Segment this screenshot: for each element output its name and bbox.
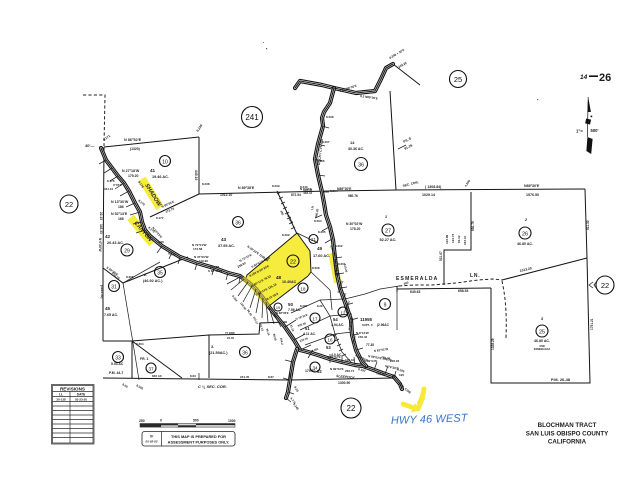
svg-text:N 30°02'W: N 30°02'W <box>346 222 363 226</box>
svg-text:P.M. 26-48: P.M. 26-48 <box>551 377 571 382</box>
svg-text:SAN LUIS OBISPO COUNTY: SAN LUIS OBISPO COUNTY <box>526 431 609 438</box>
svg-text:16: 16 <box>327 338 333 343</box>
svg-text:52.27 AC.: 52.27 AC. <box>380 238 397 242</box>
svg-text:(46.92 AC.): (46.92 AC.) <box>143 279 163 283</box>
svg-text:LN: LN <box>310 206 315 211</box>
svg-text:ESMERALDA: ESMERALDA <box>534 347 551 351</box>
svg-text:FR. 1: FR. 1 <box>140 357 148 361</box>
svg-text:37.95 AC.: 37.95 AC. <box>218 244 235 248</box>
svg-text:2.: 2. <box>143 273 147 277</box>
svg-text:35: 35 <box>157 271 163 277</box>
svg-text:31: 31 <box>111 285 117 291</box>
svg-text:S 82°45'W: S 82°45'W <box>208 269 222 273</box>
svg-text:8.298: 8.298 <box>312 266 320 270</box>
svg-text:48: 48 <box>276 275 282 280</box>
svg-text:03-23-20: 03-23-20 <box>75 398 87 402</box>
svg-text:872.54: 872.54 <box>291 193 301 197</box>
svg-text:20.43 AC.: 20.43 AC. <box>107 241 124 245</box>
svg-text:3°37'8: 3°37'8 <box>113 183 122 187</box>
svg-text:33: 33 <box>115 356 121 362</box>
svg-text:500: 500 <box>193 419 199 423</box>
svg-text:SUP'L C: SUP'L C <box>362 323 373 327</box>
svg-text:25: 25 <box>539 330 545 336</box>
svg-text:1576.50: 1576.50 <box>526 193 539 197</box>
svg-text:8.206: 8.206 <box>317 159 325 163</box>
svg-text:ESMERALDA: ESMERALDA <box>396 276 438 282</box>
svg-text:30.36 AC.: 30.36 AC. <box>348 147 364 151</box>
svg-text:22.13: 22.13 <box>99 212 103 220</box>
svg-text:650.76: 650.76 <box>471 221 475 231</box>
svg-text:46.80 AC.: 46.80 AC. <box>534 339 550 343</box>
svg-text:1029.14: 1029.14 <box>422 193 435 197</box>
svg-text:CALIFORNIA: CALIFORNIA <box>548 439 587 446</box>
svg-text:24.40: 24.40 <box>227 336 234 340</box>
svg-text:43: 43 <box>221 237 227 242</box>
svg-text:7.65 AC.: 7.65 AC. <box>104 313 118 317</box>
svg-text:26: 26 <box>599 72 611 84</box>
svg-text:54: 54 <box>333 317 338 322</box>
svg-text:29: 29 <box>124 249 130 255</box>
svg-text:8.299: 8.299 <box>282 233 290 237</box>
svg-text:8.29: 8.29 <box>317 304 323 308</box>
svg-text:8.304: 8.304 <box>136 342 144 346</box>
svg-text:DATE: DATE <box>77 393 85 397</box>
svg-text:250: 250 <box>139 419 145 423</box>
svg-text:S 89°04'E: S 89°04'E <box>364 359 377 363</box>
svg-text:11955: 11955 <box>360 317 373 322</box>
svg-text:8.63: 8.63 <box>190 374 196 378</box>
svg-text:4.11 AC.: 4.11 AC. <box>303 332 316 336</box>
svg-text:62.02: 62.02 <box>457 235 461 243</box>
svg-text:N 89°02'E: N 89°02'E <box>327 355 341 359</box>
svg-text:1328.29: 1328.29 <box>491 338 495 350</box>
svg-text:14: 14 <box>580 74 588 81</box>
svg-text:BLOCHMAN TRACT: BLOCHMAN TRACT <box>538 422 597 429</box>
svg-text:N 0°20'W: N 0°20'W <box>98 238 102 252</box>
svg-text:0: 0 <box>160 419 162 423</box>
svg-text:46.80 AC.: 46.80 AC. <box>517 242 533 246</box>
svg-text:156.42: 156.42 <box>358 335 368 339</box>
svg-text:4.94 AC.: 4.94 AC. <box>331 323 344 327</box>
svg-text:195: 195 <box>399 373 404 377</box>
svg-text:22: 22 <box>347 404 356 413</box>
svg-text:N 13°30'W: N 13°30'W <box>111 200 129 204</box>
svg-text:846 AC: 846 AC <box>152 374 163 378</box>
svg-text:THIS MAP IS PREPARED FOR: THIS MAP IS PREPARED FOR <box>171 434 226 439</box>
svg-text:N89°30'E: N89°30'E <box>524 184 540 188</box>
svg-text:45: 45 <box>105 306 111 311</box>
svg-text:REVISIONS: REVISIONS <box>60 386 85 391</box>
svg-text:N 89°02'E: N 89°02'E <box>330 367 344 371</box>
svg-text:36: 36 <box>242 351 248 357</box>
svg-text:10: 10 <box>162 160 168 166</box>
svg-text:C ¼ SEC. COR.: C ¼ SEC. COR. <box>198 384 227 389</box>
svg-text:40'—: 40'— <box>85 143 94 148</box>
svg-text:8.238: 8.238 <box>202 182 210 186</box>
svg-text:21: 21 <box>311 237 316 242</box>
svg-text:8.306: 8.306 <box>126 275 134 279</box>
svg-text:241: 241 <box>245 113 259 122</box>
svg-text:448.44: 448.44 <box>303 191 313 195</box>
svg-text:20-138: 20-138 <box>56 398 66 402</box>
svg-text:911.30: 911.30 <box>586 220 590 230</box>
svg-text:50: 50 <box>288 302 293 307</box>
svg-text:244.45: 244.45 <box>240 375 250 379</box>
svg-text:1012.10: 1012.10 <box>220 193 232 197</box>
svg-text:8.204: 8.204 <box>330 189 338 193</box>
svg-text:178.20: 178.20 <box>350 227 360 231</box>
svg-text:19: 19 <box>276 306 280 310</box>
svg-text:22: 22 <box>290 260 296 266</box>
svg-text:173.58: 173.58 <box>193 247 203 251</box>
svg-text:7.56 AC.: 7.56 AC. <box>288 308 301 312</box>
svg-text:34: 34 <box>312 366 318 371</box>
svg-text:9: 9 <box>384 303 387 309</box>
svg-text:(1320): (1320) <box>130 147 140 151</box>
svg-text:1751.21: 1751.21 <box>590 318 594 330</box>
svg-text:P.M. 44-7: P.M. 44-7 <box>109 371 123 375</box>
svg-text:14: 14 <box>350 140 355 145</box>
svg-text:8.06: 8.06 <box>158 240 164 244</box>
svg-text:17.60 AC.: 17.60 AC. <box>313 254 330 258</box>
svg-text:36: 36 <box>358 163 364 169</box>
svg-text:41: 41 <box>150 168 156 173</box>
svg-text:8.177: 8.177 <box>156 216 164 220</box>
svg-text:1300.90: 1300.90 <box>338 381 350 385</box>
svg-text:N 86°52'E: N 86°52'E <box>124 138 142 142</box>
svg-text:51: 51 <box>305 326 310 331</box>
svg-text:8.207: 8.207 <box>322 140 330 144</box>
svg-text:49: 49 <box>317 246 323 251</box>
svg-text:N89°30'E: N89°30'E <box>337 187 352 191</box>
svg-text:8.296: 8.296 <box>300 304 307 308</box>
svg-text:658.53: 658.53 <box>458 289 468 293</box>
svg-text:230.71: 230.71 <box>345 369 355 373</box>
svg-text:42: 42 <box>105 234 111 239</box>
svg-text:143.33: 143.33 <box>99 224 103 234</box>
svg-text:(2.96AC: (2.96AC <box>377 323 390 327</box>
svg-text:53: 53 <box>326 345 331 350</box>
svg-text:77.06W: 77.06W <box>225 331 235 335</box>
svg-text:8.239: 8.239 <box>272 184 280 188</box>
svg-text:3.: 3. <box>211 345 214 349</box>
svg-text:8.67: 8.67 <box>268 375 274 379</box>
svg-text:22: 22 <box>601 281 609 290</box>
svg-text:1"=: 1"= <box>576 129 583 134</box>
svg-text:10.40AC: 10.40AC <box>282 280 297 284</box>
svg-text:(21.59AC.): (21.59AC.) <box>209 351 228 355</box>
svg-text:19.46 AC.: 19.46 AC. <box>152 175 169 179</box>
svg-text:8.202: 8.202 <box>335 244 343 248</box>
svg-text:500': 500' <box>591 128 599 133</box>
svg-text:8.205: 8.205 <box>318 230 326 234</box>
svg-text:122.89: 122.89 <box>445 234 449 244</box>
svg-text:119.90: 119.90 <box>199 259 208 263</box>
svg-text:27: 27 <box>385 229 391 235</box>
svg-text:445.10: 445.10 <box>194 170 198 180</box>
svg-text:168: 168 <box>118 217 124 221</box>
svg-text:03-02-02: 03-02-02 <box>145 440 157 444</box>
svg-text:163.31: 163.31 <box>463 235 467 245</box>
svg-text:37: 37 <box>148 367 154 372</box>
svg-text:N 88°06'E: N 88°06'E <box>276 311 289 315</box>
svg-text:26: 26 <box>522 232 528 238</box>
svg-text:N 89°38'E: N 89°38'E <box>238 186 255 190</box>
svg-text:17: 17 <box>312 317 318 322</box>
svg-text:8.204: 8.204 <box>314 219 322 223</box>
svg-text:LN.: LN. <box>470 273 480 279</box>
svg-text:179.20: 179.20 <box>128 174 138 178</box>
svg-text:77.38: 77.38 <box>366 343 374 347</box>
svg-text:22: 22 <box>65 200 73 209</box>
svg-text:124.74: 124.74 <box>451 233 455 243</box>
svg-text:(1143.56): (1143.56) <box>100 285 104 298</box>
svg-text:186: 186 <box>118 205 124 209</box>
svg-text:( 1308.84): ( 1308.84) <box>425 185 442 189</box>
svg-text:521.67: 521.67 <box>439 251 443 261</box>
svg-text:341.10: 341.10 <box>104 187 114 191</box>
svg-text:ASSESSMENT PURPOSES ONLY.: ASSESSMENT PURPOSES ONLY. <box>168 439 230 444</box>
svg-text:LL: LL <box>59 393 63 397</box>
svg-text:12: 12 <box>340 311 346 316</box>
svg-text:36: 36 <box>235 221 241 227</box>
svg-text:980.76: 980.76 <box>348 194 358 198</box>
svg-text:25: 25 <box>454 75 462 84</box>
svg-text:18: 18 <box>300 287 306 292</box>
svg-text:N 27°18'W: N 27°18'W <box>122 169 140 173</box>
svg-text:8.208: 8.208 <box>326 115 334 119</box>
svg-text:1000: 1000 <box>228 419 236 423</box>
svg-text:649.63: 649.63 <box>410 290 420 294</box>
svg-text:108.31: 108.31 <box>345 358 355 362</box>
svg-text:N 52°13'E: N 52°13'E <box>111 212 128 216</box>
